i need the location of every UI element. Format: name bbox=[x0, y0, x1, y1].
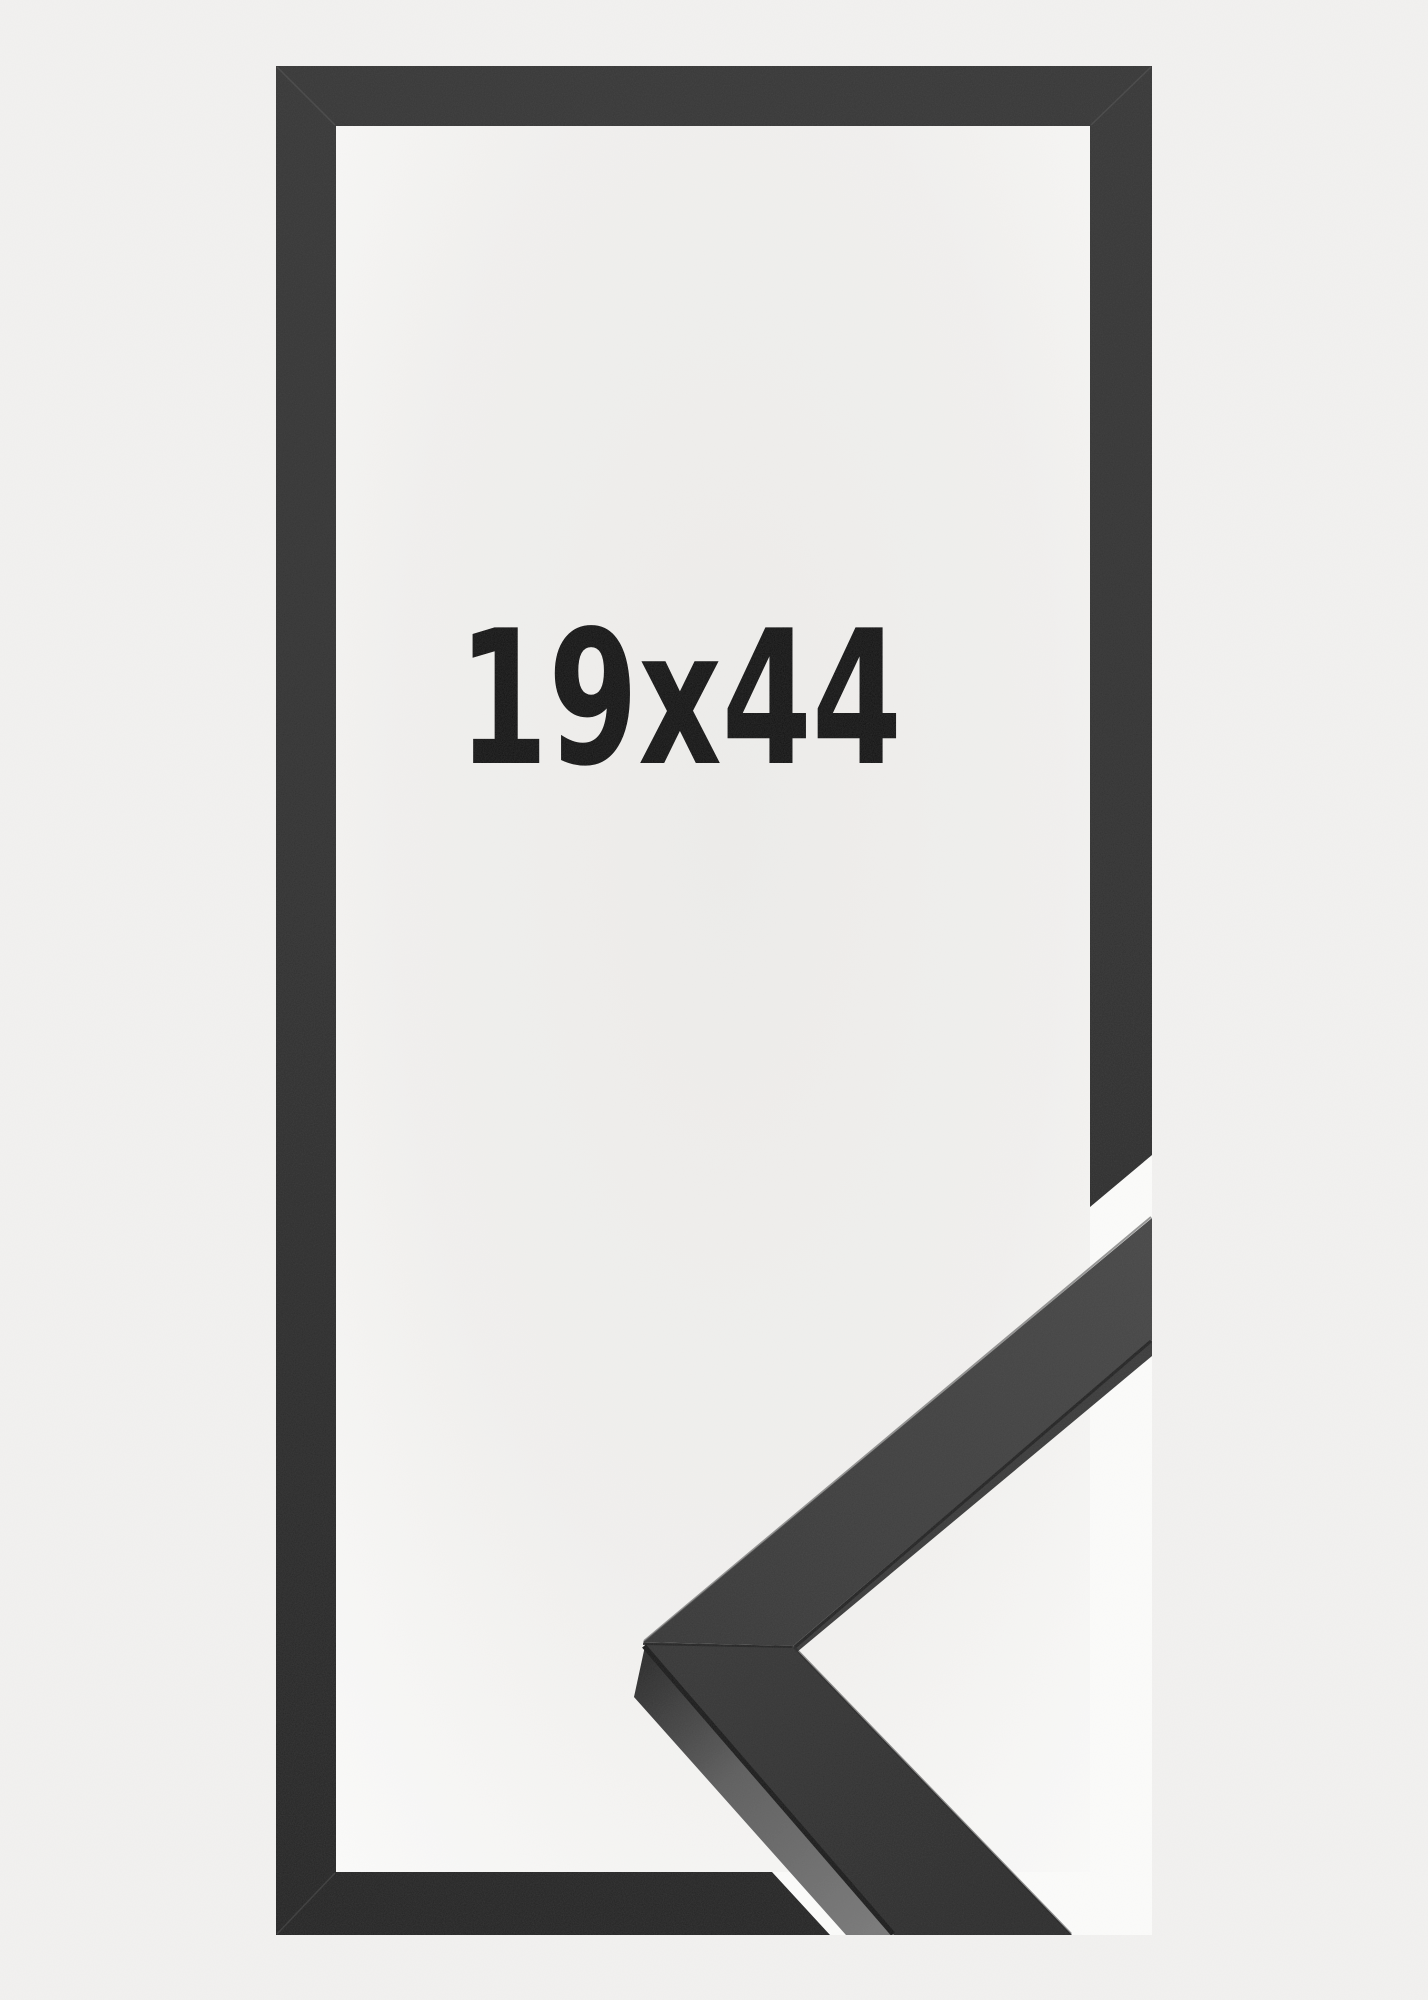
frame-product-graphic: 19x44 bbox=[0, 0, 1428, 2000]
size-label: 19x44 bbox=[458, 590, 902, 807]
product-image: 19x44 bbox=[0, 0, 1428, 2000]
